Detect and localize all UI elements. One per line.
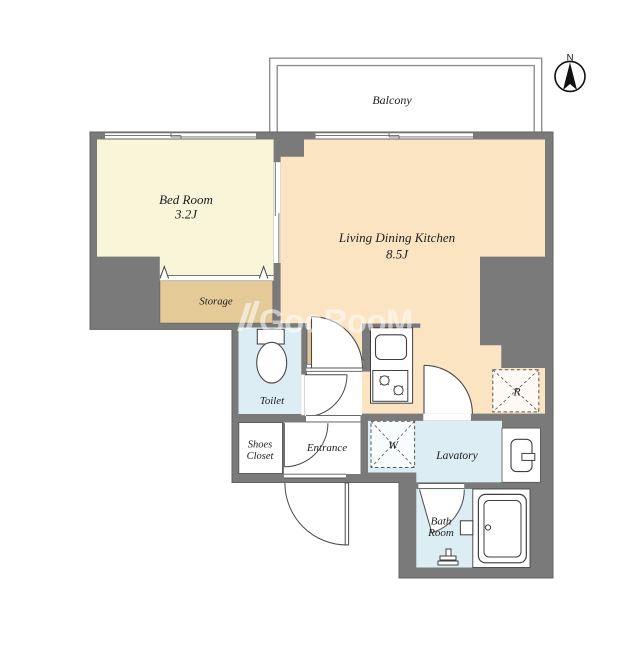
svg-text:Bed Room: Bed Room: [159, 192, 213, 207]
svg-text:R: R: [512, 387, 520, 399]
svg-text:GooRooM: GooRooM: [259, 303, 413, 340]
svg-text:Toilet: Toilet: [260, 395, 285, 407]
svg-text:Closet: Closet: [247, 451, 275, 462]
svg-text:Balcony: Balcony: [372, 93, 412, 107]
svg-text:3.2J: 3.2J: [174, 207, 198, 222]
svg-text:Storage: Storage: [199, 295, 233, 307]
svg-text:Bath: Bath: [431, 516, 452, 528]
svg-text:8.5J: 8.5J: [386, 247, 409, 262]
svg-text:N: N: [567, 53, 574, 64]
svg-text:W: W: [388, 440, 399, 452]
svg-text:Room: Room: [427, 527, 454, 539]
svg-text:Shoes: Shoes: [248, 440, 273, 451]
svg-text:Lavatory: Lavatory: [435, 450, 478, 462]
svg-text:Living Dining Kitchen: Living Dining Kitchen: [338, 230, 455, 245]
svg-text:Entrance: Entrance: [306, 442, 347, 454]
